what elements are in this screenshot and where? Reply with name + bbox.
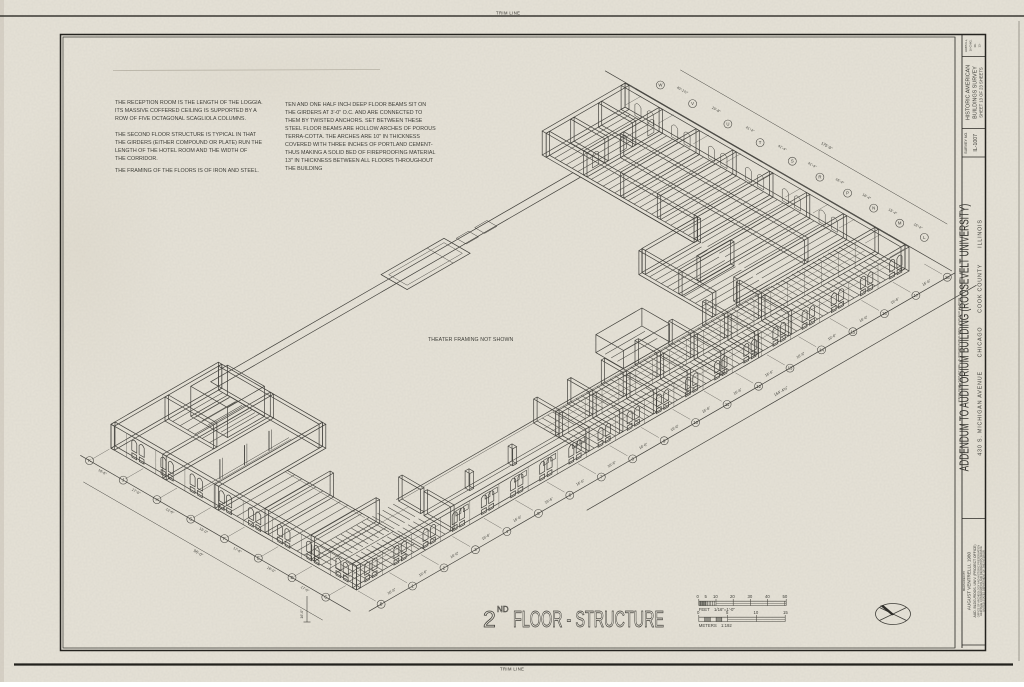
svg-text:2: 2 [483,606,496,632]
svg-text:50: 50 [783,594,788,599]
svg-text:30: 30 [748,594,753,599]
svg-text:K: K [88,458,91,463]
svg-text:SHEET 13 OF 23 SHEETS: SHEET 13 OF 23 SHEETS [979,67,984,118]
svg-text:16'-0": 16'-0" [300,609,304,619]
svg-text:TRIM LINE: TRIM LINE [500,667,524,672]
svg-text:2ND FLOOR - STRUCTURE · AUDITO: 2ND FLOOR - STRUCTURE · AUDITORIUM BUILD… [957,298,961,403]
svg-text:13: 13 [788,366,793,371]
svg-text:16: 16 [882,311,887,316]
svg-text:15: 15 [783,610,788,615]
svg-text:1/16"=1'-0": 1/16"=1'-0" [714,607,735,612]
svg-text:39-: 39- [973,43,977,47]
svg-text:10: 10 [693,420,698,425]
svg-text:J: J [122,478,124,483]
svg-text:THEATER FRAMING NOT SHOWN: THEATER FRAMING NOT SHOWN [428,337,513,343]
svg-text:M: M [898,221,902,226]
svg-text:13" IN THICKNESS BETWEEN ALL F: 13" IN THICKNESS BETWEEN ALL FLOORS THRO… [285,158,434,164]
svg-text:13-: 13- [978,43,982,47]
svg-text:THE GIRDERS (EITHER COMPOUND O: THE GIRDERS (EITHER COMPOUND OR PLATE) R… [115,140,262,146]
svg-text:THUS MAKING A SOLID BED OF FIR: THUS MAKING A SOLID BED OF FIREPROOFING … [285,150,435,156]
svg-text:10: 10 [754,610,759,615]
svg-text:F: F [223,536,226,541]
svg-text:TRIM LINE: TRIM LINE [496,11,520,16]
svg-text:THE BUILDING: THE BUILDING [285,166,322,172]
svg-text:D: D [290,575,293,580]
svg-text:C: C [324,595,327,600]
svg-text:AUGUST VENTRELLI, 1980: AUGUST VENTRELLI, 1980 [967,551,972,610]
svg-text:17: 17 [914,293,919,298]
svg-text:40: 40 [765,594,770,599]
svg-text:HISTORIC AMERICAN: HISTORIC AMERICAN [966,65,972,120]
svg-text:S: S [791,159,794,164]
svg-text:10: 10 [713,594,718,599]
svg-text:430 S. MICHIGAN AVENUE CH: 430 S. MICHIGAN AVENUE CHICAGO COOK COUN… [978,219,984,456]
svg-text:E: E [257,556,260,561]
svg-text:ROW OF FIVE OCTAGONAL SCAGLIOL: ROW OF FIVE OCTAGONAL SCAGLIOLA COLUMNS. [115,116,246,122]
svg-text:THE RECEPTION ROOM IS THE LENG: THE RECEPTION ROOM IS THE LENGTH OF THE … [115,100,263,106]
svg-text:T: T [759,140,762,145]
svg-text:THE GIRDERS AT 3'-0" O.C. AND: THE GIRDERS AT 3'-0" O.C. AND ARE CONNEC… [285,110,422,116]
svg-text:R: R [818,175,821,180]
svg-text:14: 14 [819,347,824,352]
svg-text:TEN AND ONE HALF INCH DEEP FLO: TEN AND ONE HALF INCH DEEP FLOOR BEAMS S… [285,102,426,108]
svg-text:THE FRAMING OF THE FLOORS IS O: THE FRAMING OF THE FLOORS IS OF IRON AND… [115,168,259,174]
svg-text:16-CHIG,: 16-CHIG, [969,39,973,51]
svg-text:11: 11 [725,402,730,407]
svg-text:THE SECOND FLOOR STRUCTURE IS: THE SECOND FLOOR STRUCTURE IS TYPICAL IN… [115,132,257,138]
svg-text:U: U [726,122,729,127]
svg-text:ND: ND [497,605,509,614]
svg-text:STEEL FLOOR BEAMS ARE HOLLOW A: STEEL FLOOR BEAMS ARE HOLLOW ARCHES OF P… [285,126,436,132]
svg-text:V: V [691,101,694,106]
svg-text:MEASURED BY: MEASURED BY [962,571,966,591]
svg-text:IL-1007: IL-1007 [973,134,979,152]
svg-text:HABS ILL,: HABS ILL, [964,39,968,52]
svg-text:COVERED WITH THREE INCHES OF P: COVERED WITH THREE INCHES OF PORTLAND CE… [285,142,433,148]
svg-text:UNITED STATES DEPARTMENT OF TH: UNITED STATES DEPARTMENT OF THE INTERIOR [982,550,986,612]
svg-text:TERRA-COTTA. THE ARCHES ARE 10: TERRA-COTTA. THE ARCHES ARE 10" IN THICK… [285,134,420,140]
svg-text:FEET: FEET [699,607,710,612]
svg-text:15: 15 [851,329,856,334]
svg-text:FLOOR - STRUCTURE: FLOOR - STRUCTURE [513,606,664,632]
svg-text:N: N [872,206,875,211]
svg-text:THE CORRIDOR.: THE CORRIDOR. [115,156,158,162]
svg-text:H: H [155,497,158,502]
svg-text:LENGTH OF THE HOTEL ROOM AND T: LENGTH OF THE HOTEL ROOM AND THE WIDTH O… [115,148,248,154]
svg-text:B: B [380,602,383,607]
svg-text:METERS: METERS [699,623,717,628]
svg-text:SURVEY NO.: SURVEY NO. [964,132,968,154]
svg-text:P: P [846,191,849,196]
svg-text:THEM BY TWISTED ANCHORS. SET B: THEM BY TWISTED ANCHORS. SET BETWEEN THE… [285,118,423,124]
svg-text:1:192: 1:192 [721,623,732,628]
svg-text:ITS MASSIVE COFFERED CEILING I: ITS MASSIVE COFFERED CEILING IS SUPPORTE… [115,108,257,114]
svg-text:20: 20 [730,594,735,599]
svg-text:12: 12 [756,384,761,389]
svg-text:18: 18 [945,275,950,280]
